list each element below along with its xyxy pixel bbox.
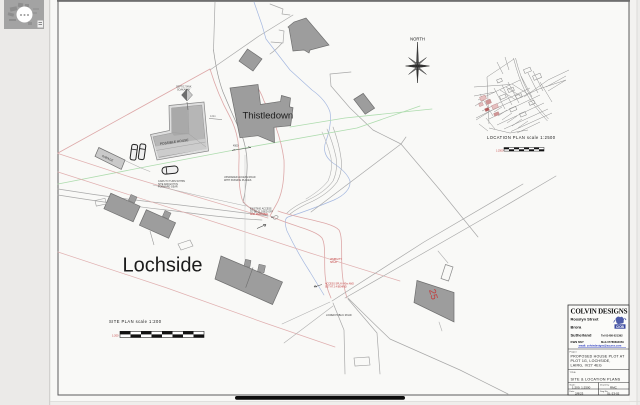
svg-text:Thistledown: Thistledown	[243, 111, 294, 122]
svg-text:RMC: RMC	[610, 385, 618, 389]
svg-text:Mob 07786694059: Mob 07786694059	[601, 340, 624, 344]
svg-text:Sutherland: Sutherland	[571, 333, 592, 338]
svg-text:1:200: 1:200	[112, 334, 119, 338]
svg-text:FORWARD GEAR: FORWARD GEAR	[158, 186, 178, 189]
svg-text:SET AT 2.4 BEHIND: SET AT 2.4 BEHIND	[325, 285, 347, 288]
svg-text:Project:: Project:	[570, 350, 578, 353]
svg-text:TITLE:: TITLE:	[570, 372, 577, 374]
svg-text:Drawn by:: Drawn by:	[600, 383, 610, 386]
svg-text:SITE PLAN scale 1:200: SITE PLAN scale 1:200	[109, 319, 162, 324]
svg-text:WITH PASSING PLACES: WITH PASSING PLACES	[224, 179, 252, 182]
svg-text:2/8/23: 2/8/23	[575, 392, 584, 396]
svg-text:PROPOSED HOUSE PLOT AT: PROPOSED HOUSE PLOT AT	[571, 355, 626, 359]
svg-text:SOAKAWAY: SOAKAWAY	[177, 88, 191, 91]
svg-text:Brora: Brora	[571, 325, 582, 330]
svg-text:1:2500: 1:2500	[496, 150, 504, 153]
svg-text:COLVIN DESIGNS: COLVIN DESIGNS	[571, 308, 628, 316]
svg-text:4500: 4500	[233, 145, 239, 148]
svg-text:SPLAY: SPLAY	[330, 261, 338, 264]
svg-text:Lochside: Lochside	[123, 255, 203, 277]
svg-text:LOCATION PLAN scale 1:250: LOCATION PLAN scale 1:2500	[487, 135, 556, 140]
svg-text:SITE & LOCATION PLANS: SITE & LOCATION PLANS	[571, 378, 621, 382]
svg-text:LOWER PUBLIC ROAD: LOWER PUBLIC ROAD	[326, 314, 352, 317]
svg-text:4.0m: 4.0m	[210, 114, 216, 118]
svg-text:KW9 6NY: KW9 6NY	[571, 340, 584, 344]
svg-text:PLOT 1G, LOCHSIDE,: PLOT 1G, LOCHSIDE,	[571, 359, 611, 363]
svg-text:Tel 01408 621392: Tel 01408 621392	[601, 334, 623, 338]
svg-text:NORTH: NORTH	[410, 37, 425, 42]
svg-text:email: colvindesigns@access.co: email: colvindesigns@access.com	[579, 344, 622, 348]
svg-text:AND REMOVED: AND REMOVED	[250, 213, 268, 216]
svg-text:1:200, 1:2500: 1:200, 1:2500	[572, 385, 591, 389]
svg-text:SL-23-02: SL-23-02	[607, 392, 620, 396]
svg-text:Rosslyn Street: Rosslyn Street	[571, 317, 600, 322]
svg-text:CIOB: CIOB	[616, 325, 625, 329]
svg-text:LAIRG, IV27 4EG: LAIRG, IV27 4EG	[571, 364, 602, 368]
